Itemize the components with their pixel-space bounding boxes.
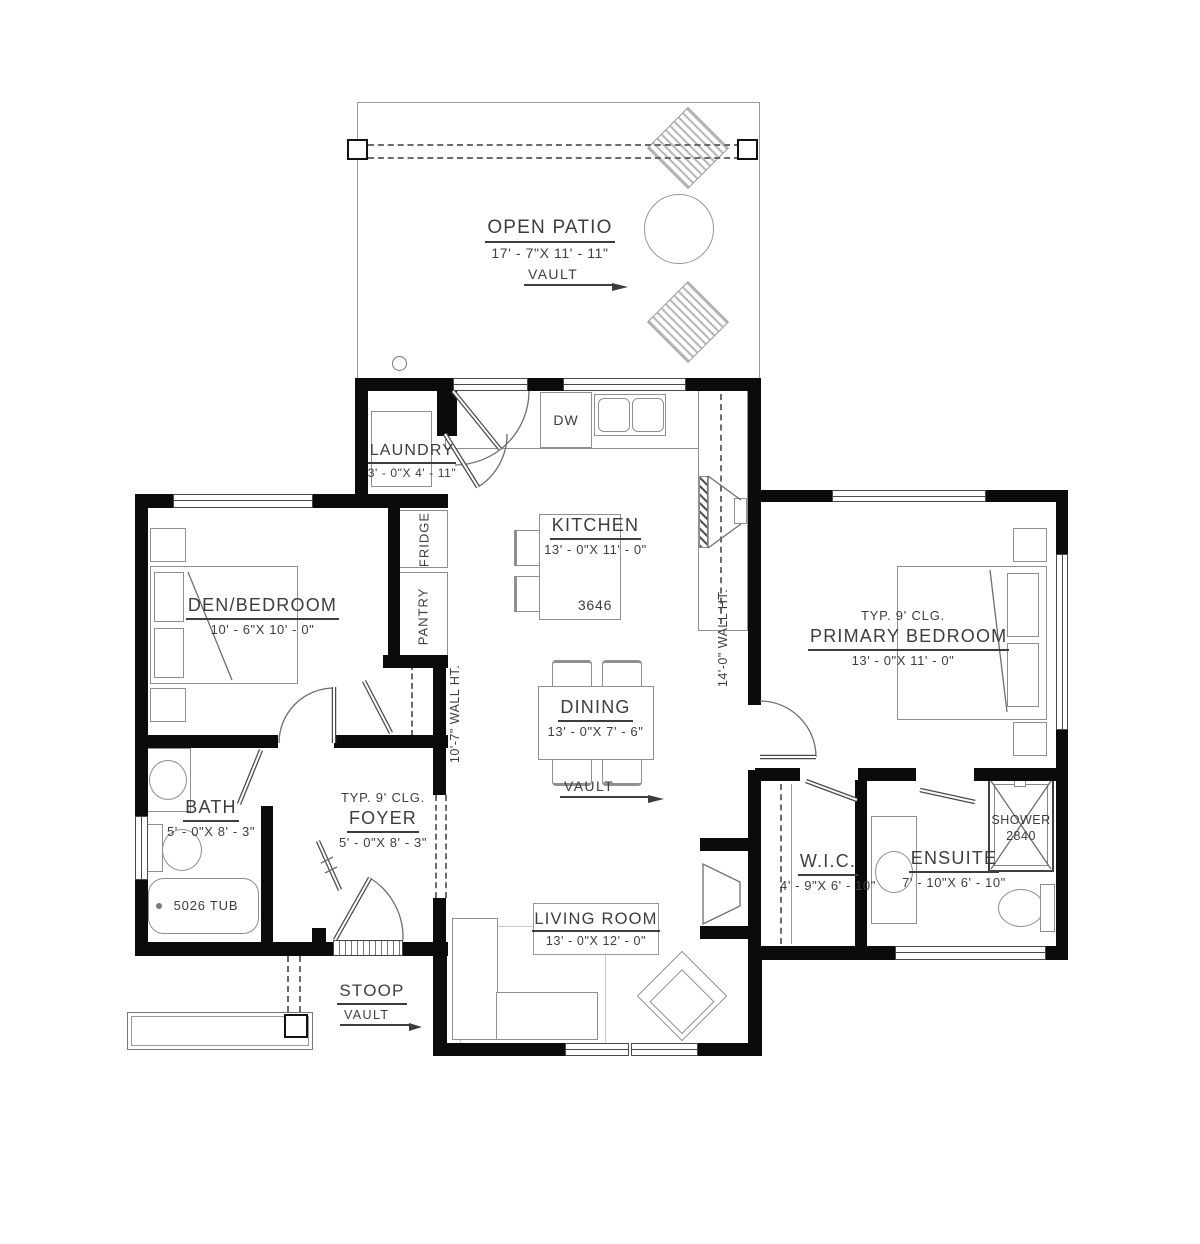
door-leaf-core [335, 878, 370, 940]
dining-chair [552, 660, 592, 688]
window [832, 490, 986, 502]
wall-height-note-left: 10'-7" WALL HT. [447, 658, 463, 770]
vault-label: VAULT [340, 1008, 393, 1026]
wall [334, 735, 448, 748]
wall [433, 655, 446, 795]
wall [1056, 730, 1068, 960]
room-name: STOOP [337, 980, 406, 1005]
nightstand [150, 688, 186, 722]
patio-post-icon [737, 139, 758, 160]
sofa-sectional [452, 918, 498, 1040]
door-leaf-core [920, 790, 975, 802]
wall [433, 898, 446, 944]
door-arc [760, 701, 816, 757]
hose-bib-icon [392, 356, 407, 371]
dishwasher: DW [540, 392, 592, 448]
room-dims: 13' - 0"X 12' - 0" [546, 934, 646, 948]
door-leaf [364, 681, 391, 733]
vault-arrow-head-icon [648, 795, 664, 803]
shower-label: SHOWER 2840 [986, 812, 1056, 844]
wall [748, 946, 762, 1056]
room-name: KITCHEN [550, 514, 641, 540]
living-room-label-box: LIVING ROOM 13' - 0"X 12' - 0" [533, 903, 659, 955]
stoop-vault-arrow: VAULT [340, 1008, 422, 1026]
wic-label: W.I.C. 4' - 9"X 6' - 10" [776, 850, 880, 895]
sink-bowl [598, 398, 630, 432]
shower-text: SHOWER [986, 812, 1056, 828]
room-name: DEN/BEDROOM [186, 594, 339, 620]
den-bedroom-label: DEN/BEDROOM 10' - 6"X 10' - 0" [180, 594, 345, 639]
armchair-shape [637, 951, 728, 1042]
wall [748, 946, 895, 960]
window [631, 1043, 698, 1056]
foyer-label: TYP. 9' CLG. FOYER 5' - 0"X 8' - 3" [323, 790, 443, 851]
ceiling-note: TYP. 9' CLG. [808, 608, 998, 625]
room-name: DINING [558, 696, 632, 722]
nightstand [1013, 722, 1047, 756]
wall-height-text: 14'-0" WALL HT. [716, 589, 730, 687]
fireplace-side [700, 838, 748, 851]
sofa-sectional [496, 992, 598, 1040]
toilet-tank [1040, 884, 1055, 932]
room-name: ENSUITE [909, 847, 999, 873]
door-leaf [806, 781, 857, 800]
patio-vault-arrow: VAULT [524, 266, 628, 286]
wall [135, 942, 333, 956]
patio-post-icon [347, 139, 368, 160]
sink-bowl [632, 398, 664, 432]
door-arc [370, 878, 403, 940]
patio-beam-dashed [368, 157, 740, 159]
room-dims: 4' - 9"X 6' - 10" [776, 878, 880, 895]
window [563, 378, 686, 391]
fridge-text: FRIDGE [417, 512, 432, 567]
nightstand [150, 528, 186, 562]
room-dims: 3' - 0"X 4' - 11" [362, 466, 462, 481]
open-patio-label: OPEN PATIO 17' - 7"X 11' - 11" [440, 216, 660, 263]
pillow [1007, 573, 1039, 637]
bath-label: BATH 5' - 0"X 8' - 3" [159, 796, 263, 841]
door-leaf [920, 790, 975, 802]
room-name: PRIMARY BEDROOM [808, 625, 1009, 651]
opening-dashed [445, 795, 447, 898]
armchair [636, 950, 728, 1042]
range-hood-box [734, 498, 747, 524]
room-dims: 7' - 10"X 6' - 10" [902, 875, 1006, 892]
room-dims: 10' - 6"X 10' - 0" [180, 622, 345, 639]
bath-sink [149, 760, 187, 800]
window [135, 816, 148, 880]
pantry-text: PANTRY [416, 588, 431, 646]
door-leaf-core [364, 681, 391, 733]
stoop-beam-dashed [299, 956, 301, 1012]
patio-beam-dashed [368, 144, 740, 146]
patio-chair [648, 108, 728, 188]
door-break-icon [321, 857, 337, 873]
window [565, 1043, 629, 1056]
room-dims: 13' - 0"X 7' - 6" [533, 724, 658, 741]
patio-chair-shape [647, 281, 729, 363]
patio-chair [648, 282, 728, 362]
kitchen-label: KITCHEN 13' - 0"X 11' - 0" [528, 514, 663, 559]
room-name: W.I.C. [798, 850, 858, 876]
room-dims: 17' - 7"X 11' - 11" [440, 245, 660, 263]
wall-height-note-right: 14'-0" WALL HT. [715, 582, 731, 694]
room-name: LAUNDRY [368, 441, 457, 464]
wall [755, 768, 800, 781]
closet-dashed [411, 664, 413, 736]
laundry-label: LAUNDRY 3' - 0"X 4' - 11" [362, 441, 462, 482]
patio-door-glazing [453, 378, 528, 391]
vault-arrow-shaft [618, 796, 648, 798]
armchair-seat [649, 969, 714, 1034]
shower-size-text: 2840 [986, 828, 1056, 844]
front-door-sill [333, 940, 403, 956]
room-dims: 13' - 0"X 11' - 0" [528, 542, 663, 559]
planter-inner [131, 1016, 309, 1046]
room-name: BATH [183, 796, 238, 822]
wall-height-text: 10'-7" WALL HT. [448, 665, 462, 763]
vault-label: VAULT [560, 778, 618, 798]
ceiling-note: TYP. 9' CLG. [323, 790, 443, 807]
wall [528, 378, 564, 391]
pillow [1007, 643, 1039, 707]
room-dims: 5' - 0"X 8' - 3" [159, 824, 263, 841]
island-size-text: 3646 [578, 597, 612, 613]
dining-label: DINING 13' - 0"X 7' - 6" [533, 696, 658, 741]
window [1056, 554, 1068, 730]
dining-chair [602, 660, 642, 688]
stool [514, 576, 540, 612]
tub-label: 5026 TUB [166, 898, 246, 913]
range-hatch [699, 476, 708, 548]
vault-arrow-shaft [582, 284, 612, 286]
room-dims: 5' - 0"X 8' - 3" [323, 835, 443, 852]
stoop-post-icon [284, 1014, 308, 1038]
primary-bedroom-label: TYP. 9' CLG. PRIMARY BEDROOM 13' - 0"X 1… [808, 608, 998, 669]
stoop-label: STOOP [334, 980, 410, 1005]
wall [974, 768, 1068, 781]
room-dims: 13' - 0"X 11' - 0" [808, 653, 998, 670]
ensuite-label: ENSUITE 7' - 10"X 6' - 10" [902, 847, 1006, 892]
fireplace-insert [703, 864, 740, 924]
wall [986, 490, 1068, 502]
wall [748, 500, 761, 705]
dishwasher-label: DW [553, 412, 578, 428]
tub-text: 5026 TUB [174, 898, 239, 913]
pantry-label: PANTRY [416, 562, 431, 672]
vault-label: VAULT [524, 266, 582, 286]
room-name: LIVING ROOM [532, 910, 659, 932]
fireplace-side [700, 926, 748, 939]
wall [748, 378, 761, 502]
dining-vault-arrow: VAULT [560, 778, 664, 798]
door-leaf-core [806, 781, 857, 800]
patio-chair-shape [647, 107, 729, 189]
door-leaf [335, 878, 370, 940]
stoop-beam-dashed [287, 956, 289, 1012]
wall [135, 494, 148, 818]
vault-arrow-shaft [393, 1024, 409, 1026]
floor-plan: OPEN PATIO 17' - 7"X 11' - 11" VAULT [0, 0, 1200, 1244]
room-name: FOYER [347, 807, 419, 833]
toilet-bowl [998, 889, 1044, 927]
vault-arrow-head-icon [612, 283, 628, 291]
wall [748, 770, 761, 950]
wall [433, 1043, 565, 1056]
nightstand [1013, 528, 1047, 562]
tub-drain-icon [156, 903, 162, 909]
wall [388, 506, 400, 660]
window [895, 946, 1046, 960]
room-name: OPEN PATIO [485, 216, 614, 243]
wall [135, 735, 278, 748]
island-size-label: 3646 [565, 597, 625, 613]
door-arc [279, 688, 334, 743]
window [173, 494, 313, 508]
vault-arrow-head-icon [409, 1023, 422, 1031]
wall [433, 942, 447, 1056]
door-jamb [312, 928, 326, 944]
